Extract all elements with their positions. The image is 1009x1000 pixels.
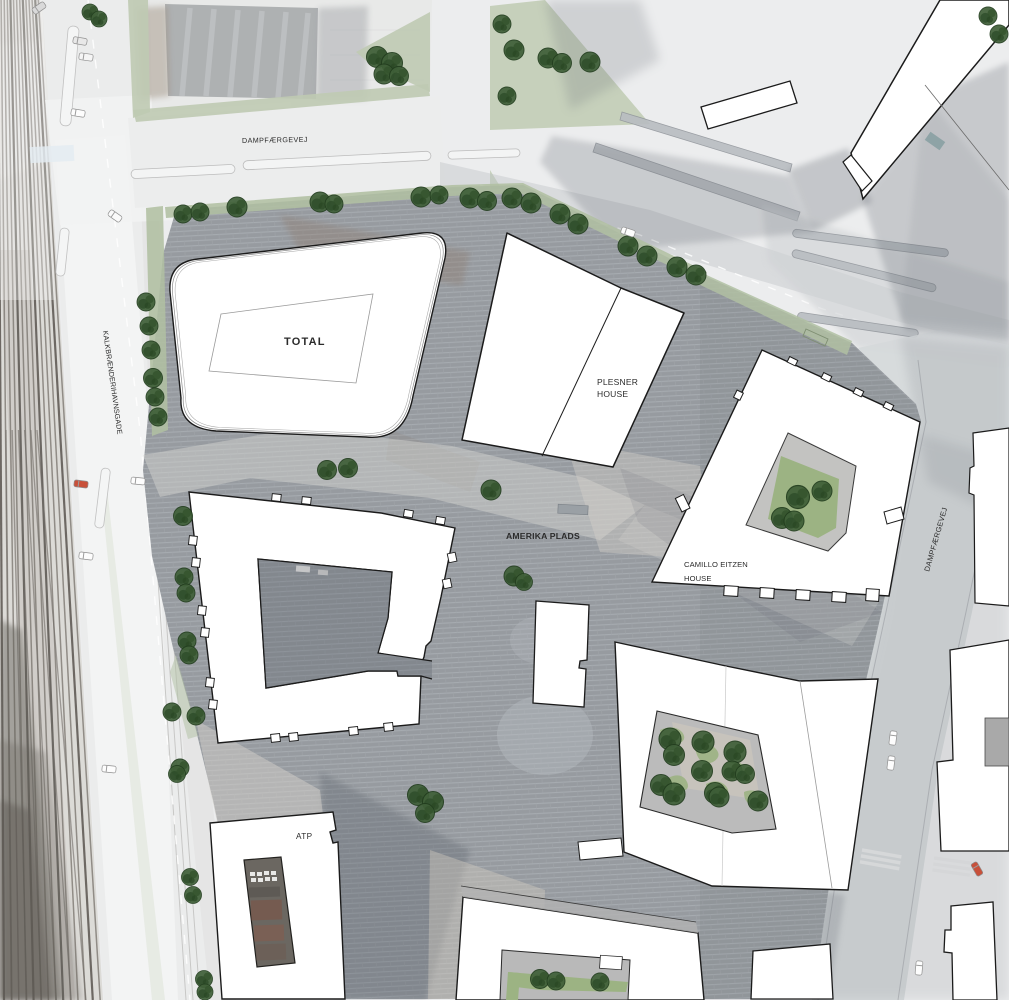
svg-text:TOTAL: TOTAL — [284, 336, 326, 348]
svg-text:ATP: ATP — [296, 832, 313, 841]
svg-text:HOUSE: HOUSE — [684, 574, 712, 583]
svg-text:CAMILLO EITZEN: CAMILLO EITZEN — [684, 560, 748, 569]
svg-text:DAMPFÆRGEVEJ: DAMPFÆRGEVEJ — [242, 135, 308, 145]
svg-text:AMERIKA PLADS: AMERIKA PLADS — [506, 531, 580, 541]
svg-text:HOUSE: HOUSE — [597, 389, 628, 399]
svg-text:PLESNER: PLESNER — [597, 377, 638, 387]
